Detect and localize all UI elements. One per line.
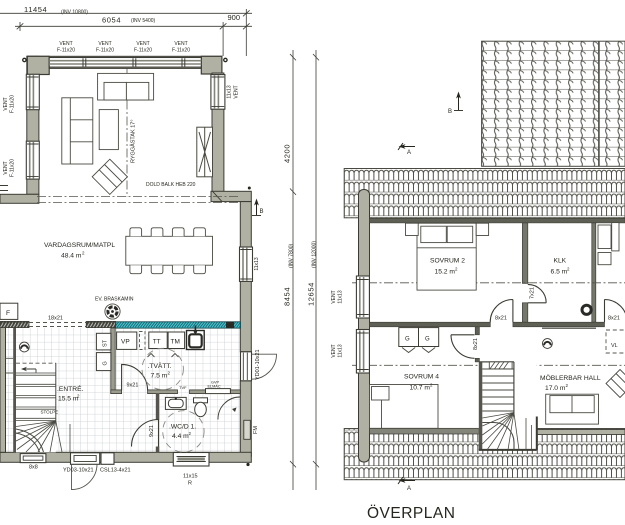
svg-text:FM: FM xyxy=(253,426,259,434)
svg-text:R: R xyxy=(188,481,192,487)
svg-text:900: 900 xyxy=(228,13,241,22)
svg-text:VARDAGSRUM/MATPL: VARDAGSRUM/MATPL xyxy=(44,242,115,249)
svg-text:F-11x20: F-11x20 xyxy=(96,48,114,54)
svg-text:8x8: 8x8 xyxy=(29,465,38,471)
svg-text:VENT: VENT xyxy=(331,344,337,357)
svg-text:7x21: 7x21 xyxy=(530,287,536,299)
svg-text:VENT: VENT xyxy=(3,161,9,174)
svg-text:.WC/D 1.: .WC/D 1. xyxy=(169,424,196,431)
svg-text:15.2 m: 15.2 m xyxy=(435,269,456,276)
svg-text:A: A xyxy=(407,486,411,492)
svg-text:VENT: VENT xyxy=(234,85,240,98)
svg-text:YD01-10x21: YD01-10x21 xyxy=(255,349,261,380)
svg-text:STOLPE: STOLPE xyxy=(41,410,59,415)
svg-text:KLK: KLK xyxy=(554,258,567,265)
svg-text:9x21: 9x21 xyxy=(149,425,155,437)
svg-text:8x21: 8x21 xyxy=(473,338,479,350)
svg-text:11x15: 11x15 xyxy=(183,474,198,480)
svg-text:4200: 4200 xyxy=(283,144,292,163)
svg-text:11x13: 11x13 xyxy=(227,85,233,98)
svg-text:11x13: 11x13 xyxy=(338,344,344,357)
svg-text:15.5 m: 15.5 m xyxy=(58,396,79,403)
svg-text:9x21: 9x21 xyxy=(127,383,139,389)
svg-text:F: F xyxy=(6,310,10,317)
svg-text:11454: 11454 xyxy=(24,5,47,14)
svg-text:TT: TT xyxy=(153,339,161,346)
svg-text:6054: 6054 xyxy=(102,15,121,24)
svg-text:ELMÄC: ELMÄC xyxy=(208,385,221,389)
svg-text:F-11x20: F-11x20 xyxy=(57,48,75,54)
svg-text:F-11x20: F-11x20 xyxy=(172,48,190,54)
svg-text:(INV 10800): (INV 10800) xyxy=(61,10,88,16)
svg-text:8454: 8454 xyxy=(283,287,292,306)
svg-text:SOVRUM 2: SOVRUM 2 xyxy=(430,258,465,265)
svg-text:7.5 m: 7.5 m xyxy=(151,373,168,380)
svg-text:VENT: VENT xyxy=(174,41,187,47)
svg-text:TM: TM xyxy=(171,339,180,346)
svg-text:CSL13-4x21: CSL13-4x21 xyxy=(100,468,131,474)
svg-text:6.5 m: 6.5 m xyxy=(551,269,568,276)
svg-text:11x13: 11x13 xyxy=(254,257,260,270)
svg-text:G: G xyxy=(425,337,430,343)
svg-text:F-11x20: F-11x20 xyxy=(10,159,16,177)
svg-text:(INV 5400): (INV 5400) xyxy=(131,18,156,24)
svg-text:SOVRUM 4: SOVRUM 4 xyxy=(404,374,439,381)
svg-text:ST: ST xyxy=(103,339,109,347)
svg-text:VP: VP xyxy=(121,339,130,346)
svg-text:G: G xyxy=(103,361,109,365)
svg-text:EV. BRASKAMIN: EV. BRASKAMIN xyxy=(95,297,134,303)
svg-text:G: G xyxy=(405,337,410,343)
svg-text:18x21: 18x21 xyxy=(48,316,63,322)
svg-text:17.0 m: 17.0 m xyxy=(545,385,566,392)
svg-text:VL: VL xyxy=(611,343,618,349)
svg-text:DOLD BALK HEB 220: DOLD BALK HEB 220 xyxy=(146,182,196,188)
svg-text:VENT: VENT xyxy=(136,41,149,47)
svg-text:VENT: VENT xyxy=(331,290,337,303)
svg-text:VENT: VENT xyxy=(59,41,72,47)
svg-text:MÖBLERBAR HALL: MÖBLERBAR HALL xyxy=(540,374,601,382)
svg-text:(INV 12000): (INV 12000) xyxy=(312,241,318,268)
svg-text:ÖVERPLAN: ÖVERPLAN xyxy=(367,504,455,522)
svg-text:10.7 m: 10.7 m xyxy=(410,385,431,392)
svg-text:48.4 m: 48.4 m xyxy=(61,253,82,260)
svg-text:B: B xyxy=(448,109,452,115)
svg-text:.ENTRÉ.: .ENTRÉ. xyxy=(57,384,84,393)
svg-text:4.4 m: 4.4 m xyxy=(172,433,189,440)
svg-text:8x21: 8x21 xyxy=(495,316,507,322)
svg-text:F-11x20: F-11x20 xyxy=(10,95,16,113)
svg-text:12654: 12654 xyxy=(307,282,316,306)
svg-text:(INV 7800): (INV 7800) xyxy=(289,243,295,268)
svg-text:YD03-10x21: YD03-10x21 xyxy=(63,468,94,474)
svg-text:11x13: 11x13 xyxy=(338,290,344,303)
svg-text:TVF: TVF xyxy=(179,385,187,390)
svg-text:B: B xyxy=(260,209,264,215)
svg-text:VENT: VENT xyxy=(98,41,111,47)
svg-text:VENT: VENT xyxy=(3,97,9,110)
svg-text:F-11x20: F-11x20 xyxy=(134,48,152,54)
svg-text:RYGGÅSTAK 17°: RYGGÅSTAK 17° xyxy=(130,119,137,163)
svg-text:8x21: 8x21 xyxy=(608,316,620,322)
svg-text:.TVÄTT.: .TVÄTT. xyxy=(148,362,172,370)
svg-text:A: A xyxy=(407,150,411,156)
